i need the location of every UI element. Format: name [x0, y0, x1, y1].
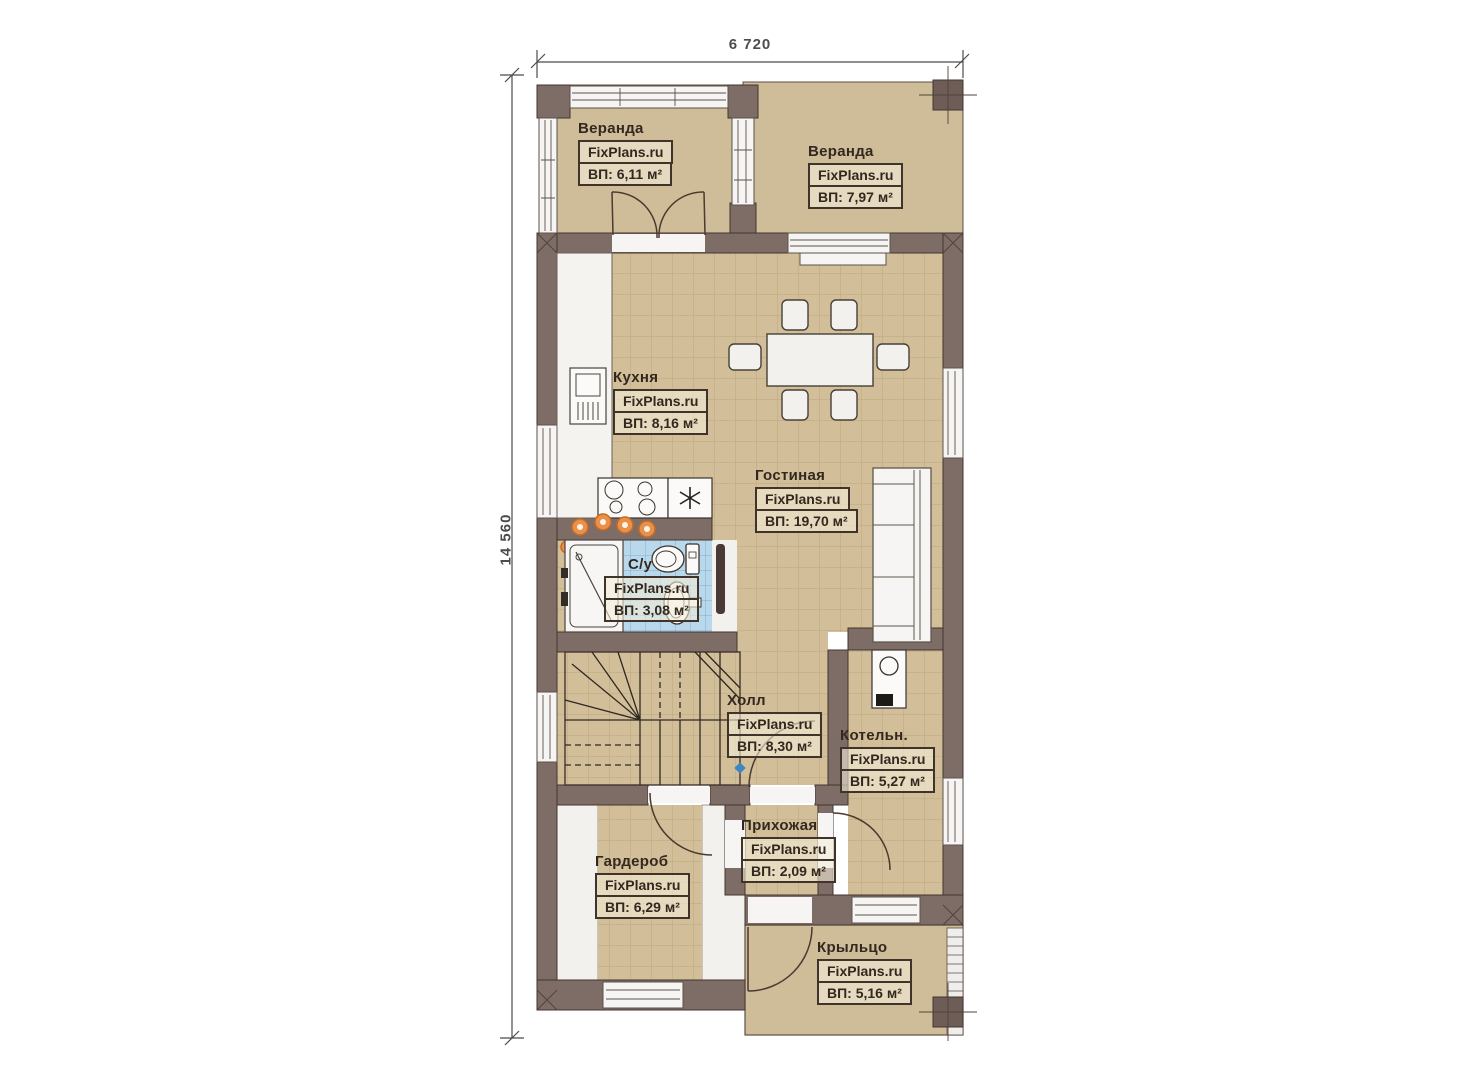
sofa-icon: [873, 468, 931, 642]
room-name: Веранда: [578, 120, 673, 137]
room-name: Гардероб: [595, 853, 690, 870]
dimension-height: 14 560: [498, 484, 515, 596]
room-name: Котельн.: [840, 727, 935, 744]
watermark-box: FixPlans.ru: [840, 747, 935, 771]
floor-plan-drawing: [0, 0, 1473, 1080]
chair-icon: [831, 300, 857, 330]
floor-plan-page: 6 720 14 560 Веранда FixPlans.ru ВП: 6,1…: [0, 0, 1473, 1080]
area-box: ВП: 2,09 м²: [741, 859, 836, 883]
veranda-glazing-left: [539, 118, 557, 233]
boiler-icon: [872, 650, 906, 708]
veranda-column-mid: [728, 85, 758, 118]
room-label-wardrobe: Гардероб FixPlans.ru ВП: 6,29 м²: [595, 853, 690, 919]
area-box: ВП: 19,70 м²: [755, 509, 858, 533]
chair-icon: [877, 344, 909, 370]
window-top: [788, 233, 890, 253]
room-label-boiler-room: Котельн. FixPlans.ru ВП: 5,27 м²: [840, 727, 935, 793]
room-label-kitchen: Кухня FixPlans.ru ВП: 8,16 м²: [613, 369, 708, 435]
window-bottom-right: [852, 897, 920, 923]
room-label-living-room: Гостиная FixPlans.ru ВП: 19,70 м²: [755, 467, 858, 533]
window-hall: [537, 692, 557, 762]
room-name: Гостиная: [755, 467, 858, 484]
dimension-width: 6 720: [537, 36, 963, 53]
room-name: Холл: [727, 692, 822, 709]
room-label-hall: Холл FixPlans.ru ВП: 8,30 м²: [727, 692, 822, 758]
area-box: ВП: 5,27 м²: [840, 769, 935, 793]
watermark-box: FixPlans.ru: [604, 576, 699, 600]
watermark-box: FixPlans.ru: [578, 140, 673, 164]
room-name: Прихожая: [741, 817, 836, 834]
room-name: С/у: [628, 556, 699, 573]
area-box: ВП: 7,97 м²: [808, 185, 903, 209]
window-kitchen: [537, 425, 557, 518]
fridge-icon: [570, 368, 606, 424]
chair-icon: [782, 300, 808, 330]
chair-icon: [831, 390, 857, 420]
area-box: ВП: 5,16 м²: [817, 981, 912, 1005]
bathroom-door-leaf: [716, 544, 725, 614]
freezer-icon: [668, 478, 712, 518]
wall-top: [537, 233, 963, 253]
watermark-box: FixPlans.ru: [595, 873, 690, 897]
staircase-icon: [565, 652, 740, 785]
watermark-box: FixPlans.ru: [727, 712, 822, 736]
window-boiler: [943, 778, 963, 845]
room-label-porch: Крыльцо FixPlans.ru ВП: 5,16 м²: [817, 939, 912, 1005]
dining-table-icon: [767, 334, 873, 386]
veranda-glazing-divider: [732, 118, 754, 205]
watermark-box: FixPlans.ru: [808, 163, 903, 187]
veranda-glazing-top: [570, 86, 728, 108]
room-label-bathroom: С/у FixPlans.ru ВП: 3,08 м²: [604, 556, 699, 622]
veranda-column-left: [537, 85, 570, 118]
room-label-veranda-left: Веранда FixPlans.ru ВП: 6,11 м²: [578, 120, 673, 186]
area-box: ВП: 8,16 м²: [613, 411, 708, 435]
watermark-box: FixPlans.ru: [755, 487, 850, 511]
watermark-box: FixPlans.ru: [613, 389, 708, 413]
wall-hall-bottom-b: [710, 785, 750, 805]
room-name: Кухня: [613, 369, 708, 386]
wall-bathroom-bottom: [557, 632, 737, 652]
watermark-box: FixPlans.ru: [817, 959, 912, 983]
room-name: Крыльцо: [817, 939, 912, 956]
room-name: Веранда: [808, 143, 903, 160]
area-box: ВП: 3,08 м²: [604, 598, 699, 622]
room-label-veranda-right: Веранда FixPlans.ru ВП: 7,97 м²: [808, 143, 903, 209]
stove-icon: [598, 478, 668, 518]
veranda-column-mid-bottom: [730, 203, 756, 233]
watermark-box: FixPlans.ru: [741, 837, 836, 861]
wall-left: [537, 233, 557, 1010]
window-living: [943, 368, 963, 458]
area-box: ВП: 6,29 м²: [595, 895, 690, 919]
window-bottom-left: [603, 982, 683, 1008]
chair-icon: [729, 344, 761, 370]
area-box: ВП: 8,30 м²: [727, 734, 822, 758]
wall-hall-bottom-a: [557, 785, 648, 805]
room-label-entry: Прихожая FixPlans.ru ВП: 2,09 м²: [741, 817, 836, 883]
chair-icon: [782, 390, 808, 420]
area-box: ВП: 6,11 м²: [578, 162, 672, 186]
wardrobe-shelving-left: [557, 805, 598, 980]
